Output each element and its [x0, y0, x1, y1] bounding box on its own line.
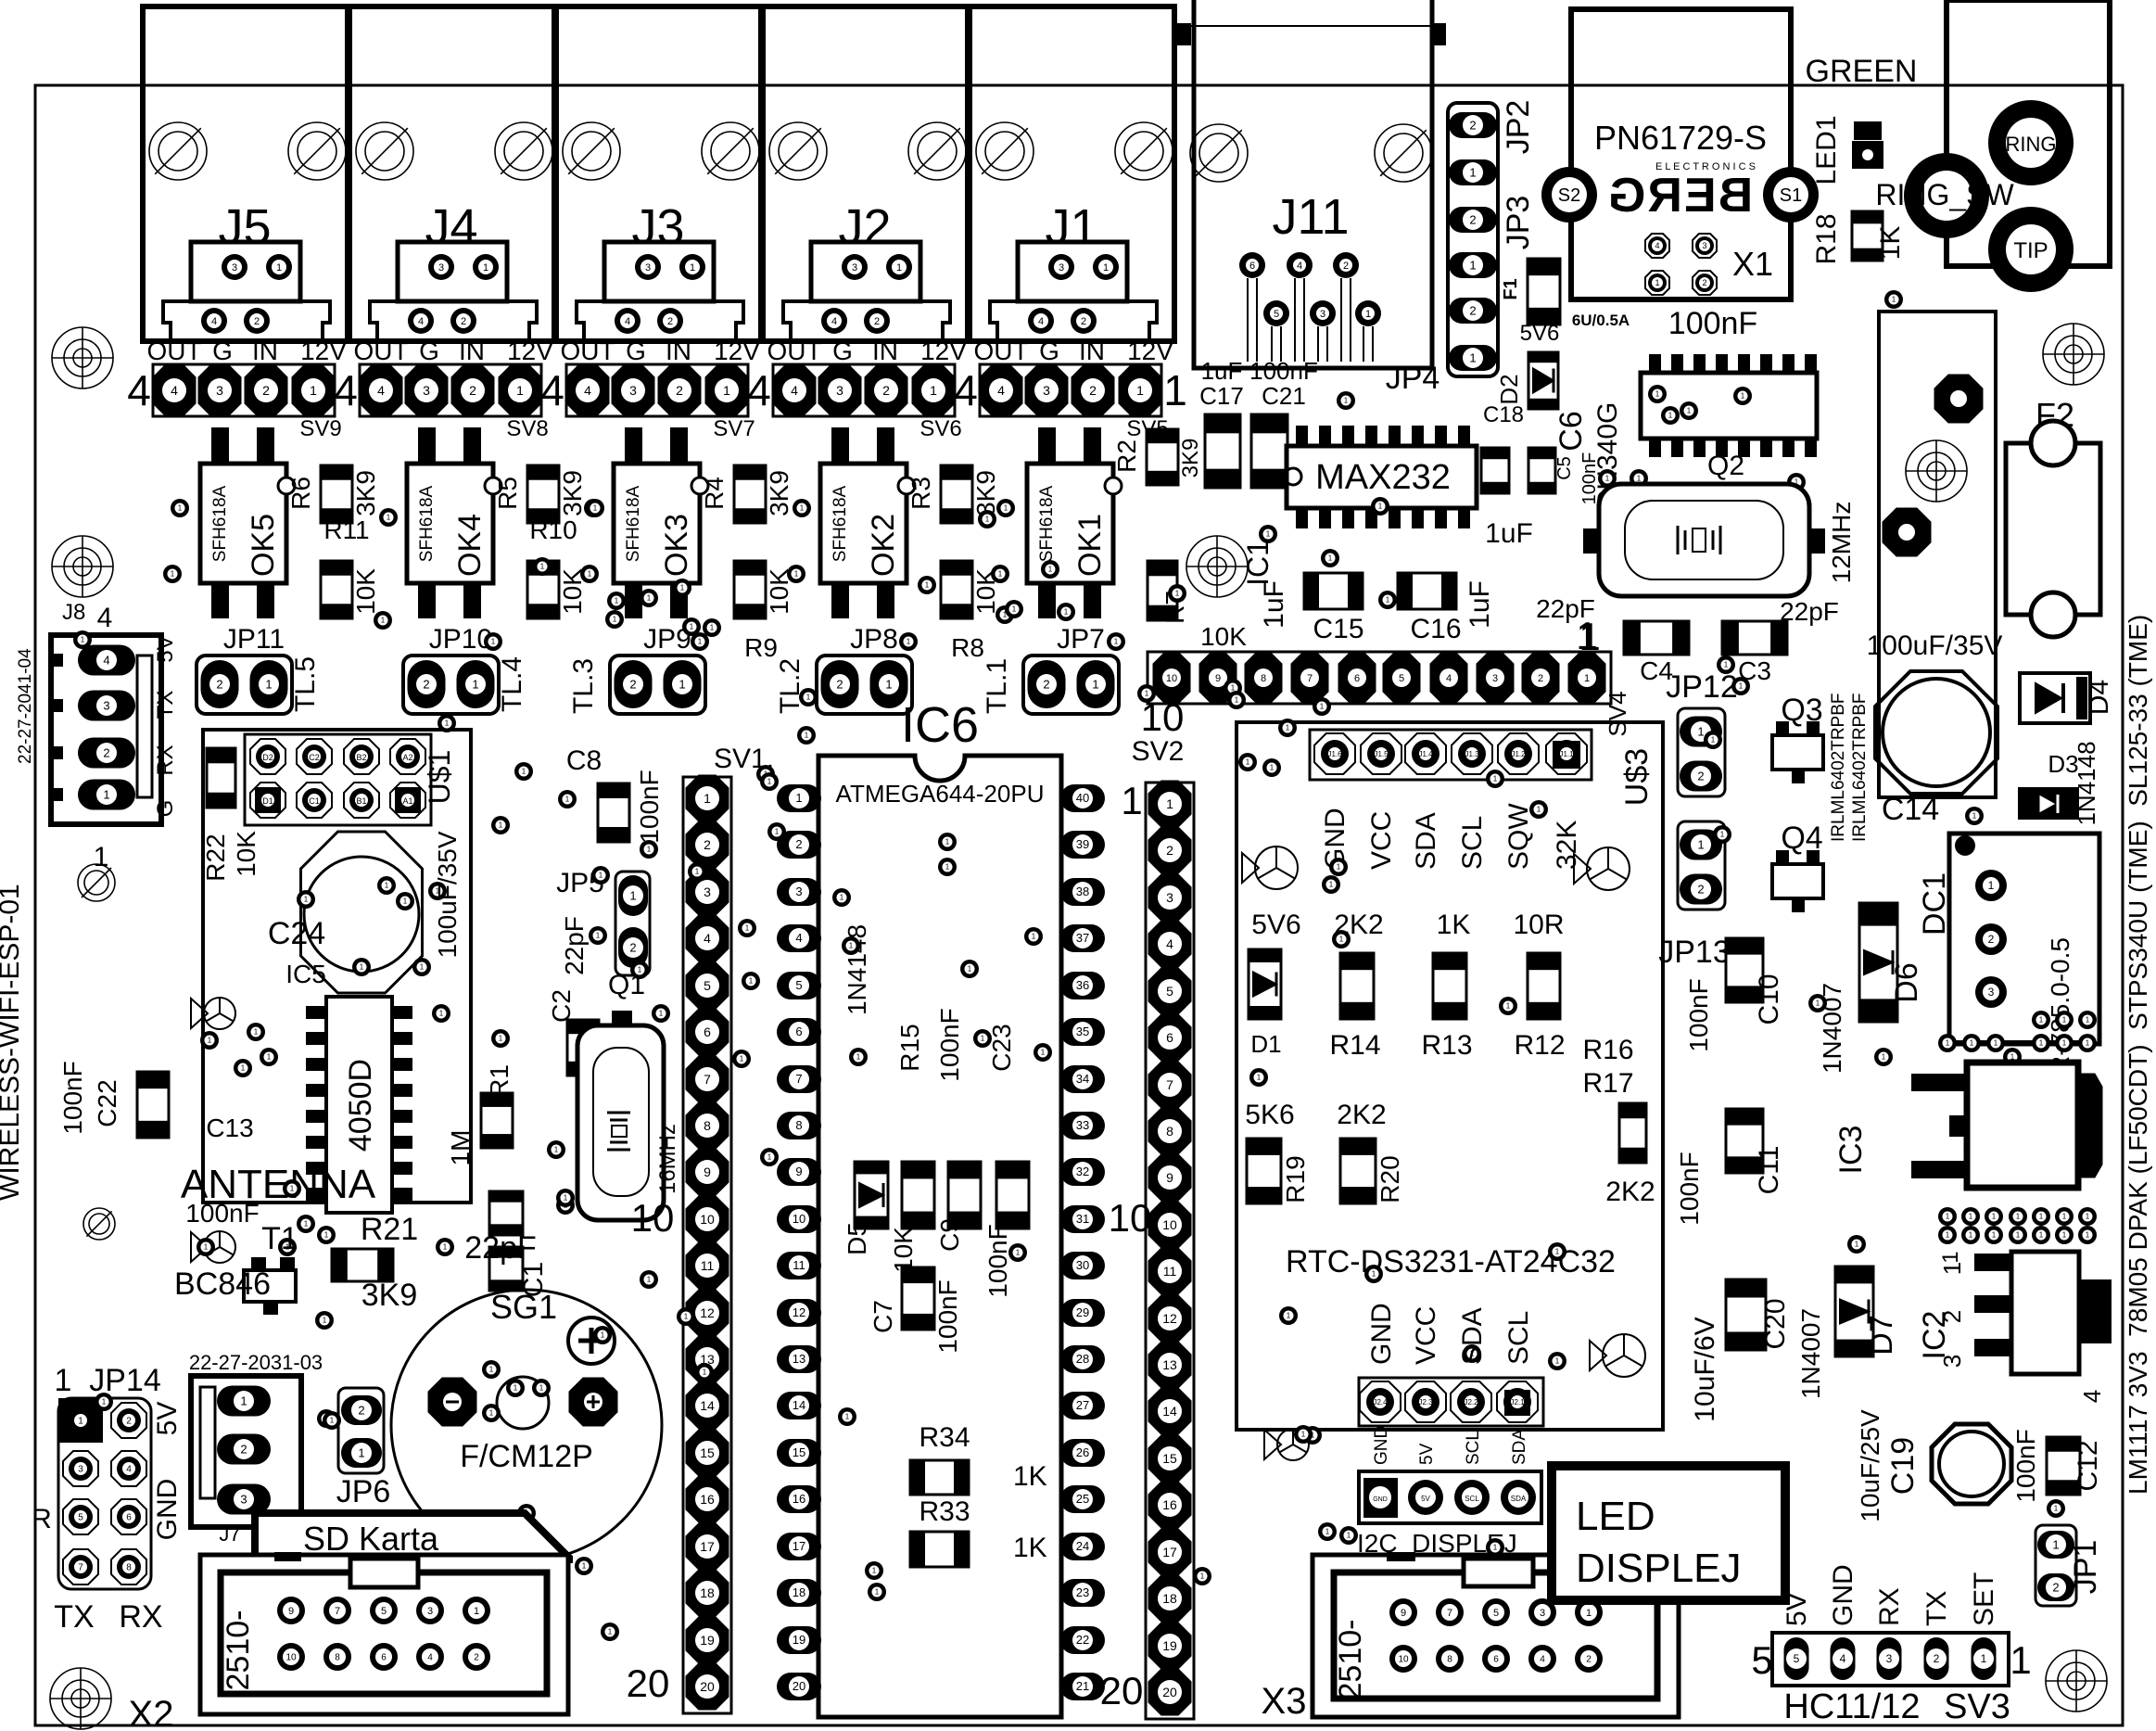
svg-text:1: 1: [680, 584, 685, 592]
svg-text:3: 3: [1540, 1608, 1545, 1619]
svg-text:2K2: 2K2: [1337, 1100, 1386, 1130]
svg-text:R17: R17: [1582, 1068, 1633, 1099]
svg-text:R11: R11: [323, 515, 369, 544]
svg-text:1: 1: [1992, 1231, 1997, 1240]
svg-text:1: 1: [103, 788, 109, 802]
svg-text:2: 2: [1043, 678, 1049, 692]
svg-text:12: 12: [1162, 1311, 1177, 1326]
svg-text:1: 1: [679, 678, 685, 692]
svg-text:20: 20: [700, 1679, 715, 1694]
svg-text:1: 1: [472, 678, 478, 692]
svg-text:2510-: 2510-: [221, 1610, 256, 1691]
svg-text:1: 1: [1064, 608, 1069, 617]
svg-text:OUT: OUT: [560, 337, 615, 365]
svg-text:GND: GND: [1372, 1426, 1391, 1465]
svg-text:1: 1: [1469, 166, 1476, 180]
svg-text:3: 3: [240, 1493, 247, 1507]
svg-text:4: 4: [954, 366, 978, 414]
svg-text:7: 7: [1307, 673, 1313, 684]
svg-text:4: 4: [2078, 1390, 2106, 1403]
svg-text:4: 4: [704, 931, 711, 946]
svg-text:1: 1: [2062, 1213, 2067, 1221]
svg-text:30: 30: [1076, 1258, 1089, 1272]
svg-text:17: 17: [700, 1539, 715, 1554]
svg-text:3: 3: [103, 699, 109, 713]
svg-text:SFH618A: SFH618A: [1037, 485, 1057, 562]
svg-text:1: 1: [2052, 1538, 2059, 1552]
svg-text:J2.4: J2.4: [1373, 1398, 1388, 1406]
svg-text:1: 1: [749, 977, 754, 986]
svg-text:IN: IN: [872, 337, 898, 365]
svg-text:1: 1: [690, 262, 695, 274]
svg-text:1: 1: [1266, 530, 1271, 539]
svg-text:22: 22: [1076, 1633, 1089, 1647]
svg-text:SFH618A: SFH618A: [417, 485, 437, 562]
svg-text:U$3: U$3: [1619, 748, 1655, 806]
svg-text:100nF: 100nF: [58, 1061, 87, 1134]
svg-text:C16: C16: [1410, 614, 1461, 644]
svg-text:1: 1: [2062, 1039, 2067, 1048]
svg-text:C7: C7: [869, 1300, 897, 1333]
svg-text:C14: C14: [1882, 792, 1939, 827]
svg-text:1: 1: [1992, 1213, 1997, 1221]
svg-text:2: 2: [874, 316, 880, 327]
svg-text:1: 1: [1145, 690, 1149, 698]
svg-text:1: 1: [615, 597, 619, 605]
svg-text:MAX232: MAX232: [1315, 458, 1451, 497]
svg-text:20: 20: [1162, 1685, 1177, 1699]
svg-text:SFH618A: SFH618A: [831, 485, 850, 562]
svg-text:100nF: 100nF: [1249, 357, 1318, 385]
svg-text:RX: RX: [119, 1599, 162, 1635]
svg-text:2: 2: [1343, 261, 1349, 272]
svg-text:1: 1: [304, 1220, 309, 1228]
svg-text:1: 1: [981, 1035, 985, 1043]
svg-text:5: 5: [795, 978, 802, 992]
svg-text:1uF: 1uF: [1201, 357, 1243, 385]
svg-text:100nF: 100nF: [1668, 306, 1757, 341]
svg-text:C8: C8: [566, 745, 602, 776]
svg-text:4: 4: [171, 383, 178, 398]
svg-text:40: 40: [1076, 791, 1089, 805]
svg-text:1: 1: [1469, 351, 1476, 365]
svg-text:R18: R18: [1811, 213, 1842, 264]
svg-text:SV3: SV3: [1944, 1687, 2010, 1726]
svg-text:1: 1: [775, 828, 780, 836]
svg-text:1: 1: [1576, 614, 1597, 657]
svg-text:R1: R1: [485, 1064, 514, 1098]
svg-text:R22: R22: [201, 834, 230, 881]
svg-text:GND: GND: [1366, 1303, 1397, 1365]
svg-text:1: 1: [945, 863, 950, 872]
svg-text:4: 4: [1446, 673, 1452, 684]
svg-text:R-785.0-0.5: R-785.0-0.5: [2046, 937, 2074, 1075]
svg-text:1: 1: [710, 624, 715, 632]
svg-text:12: 12: [700, 1305, 715, 1320]
svg-text:OUT: OUT: [353, 337, 408, 365]
svg-text:2: 2: [469, 383, 476, 398]
svg-text:OUT: OUT: [767, 337, 821, 365]
svg-text:OUT: OUT: [146, 337, 201, 365]
svg-text:1: 1: [930, 383, 937, 398]
svg-text:3: 3: [438, 262, 444, 274]
svg-text:8: 8: [1261, 673, 1266, 684]
svg-text:26: 26: [1076, 1445, 1089, 1459]
svg-text:R9: R9: [744, 633, 778, 662]
svg-text:4: 4: [625, 316, 630, 327]
svg-text:1: 1: [2086, 1039, 2090, 1048]
svg-text:U$1: U$1: [423, 750, 456, 805]
svg-text:16MHz: 16MHz: [655, 1124, 680, 1194]
svg-text:1: 1: [1246, 758, 1250, 767]
svg-text:SFH618A: SFH618A: [624, 485, 643, 562]
svg-text:OK4: OK4: [452, 514, 488, 577]
svg-text:JP11: JP11: [223, 624, 285, 655]
svg-text:1: 1: [489, 1409, 494, 1418]
svg-text:JP10: JP10: [429, 624, 492, 655]
svg-text:4: 4: [747, 366, 771, 414]
svg-text:10K: 10K: [232, 831, 260, 877]
svg-text:1: 1: [1637, 475, 1642, 483]
svg-text:19: 19: [700, 1633, 715, 1648]
svg-text:100uF/35V: 100uF/35V: [433, 831, 462, 958]
svg-text:9: 9: [1215, 673, 1221, 684]
svg-text:J2.2: J2.2: [1464, 1398, 1478, 1406]
svg-text:1: 1: [1114, 638, 1119, 646]
svg-text:1: 1: [638, 966, 642, 974]
svg-text:10K: 10K: [889, 1227, 918, 1273]
svg-text:SDA: SDA: [1510, 1429, 1529, 1465]
svg-text:1: 1: [304, 896, 309, 904]
svg-text:35: 35: [1076, 1025, 1089, 1038]
svg-text:1: 1: [2039, 1231, 2044, 1240]
svg-text:1: 1: [1816, 999, 1820, 1008]
svg-text:J7: J7: [219, 1522, 240, 1546]
svg-text:5: 5: [1794, 1652, 1800, 1665]
svg-text:1: 1: [1892, 296, 1896, 304]
svg-text:5: 5: [704, 978, 711, 993]
svg-text:3: 3: [1886, 1652, 1893, 1665]
svg-text:18: 18: [793, 1585, 805, 1599]
svg-text:1: 1: [1032, 933, 1036, 941]
svg-text:VCC: VCC: [1366, 811, 1397, 870]
svg-text:1: 1: [1016, 1249, 1021, 1257]
svg-text:C17: C17: [1199, 382, 1244, 410]
svg-text:1: 1: [499, 821, 503, 830]
svg-text:1N4007: 1N4007: [1796, 1308, 1825, 1399]
svg-text:16: 16: [793, 1492, 805, 1506]
svg-text:9: 9: [1166, 1170, 1173, 1185]
svg-text:1: 1: [2062, 1016, 2067, 1025]
svg-text:1: 1: [240, 1394, 247, 1408]
svg-text:1: 1: [845, 1413, 850, 1421]
svg-text:Q4: Q4: [1781, 821, 1822, 856]
svg-text:D4: D4: [2084, 680, 2114, 715]
svg-text:C10: C10: [1754, 974, 1784, 1025]
svg-text:4: 4: [795, 931, 802, 945]
svg-text:1: 1: [1739, 682, 1744, 691]
svg-text:G: G: [1039, 337, 1059, 365]
svg-text:C24: C24: [268, 916, 325, 951]
svg-text:R: R: [32, 1504, 52, 1534]
svg-text:1K: 1K: [1013, 1461, 1047, 1492]
svg-text:3: 3: [427, 1606, 433, 1617]
svg-text:1: 1: [2039, 1213, 2044, 1221]
svg-text:10K: 10K: [351, 568, 380, 615]
svg-text:BERG: BERG: [1606, 169, 1753, 223]
svg-text:6: 6: [1166, 1030, 1173, 1045]
svg-text:B1: B1: [356, 796, 366, 806]
svg-text:1: 1: [381, 617, 386, 625]
svg-text:1: 1: [1339, 936, 1344, 944]
svg-text:2K2: 2K2: [1605, 1177, 1655, 1207]
svg-text:C18: C18: [1483, 402, 1524, 427]
svg-text:15: 15: [700, 1445, 715, 1460]
svg-text:33: 33: [1076, 1118, 1089, 1132]
svg-text:25: 25: [1076, 1492, 1089, 1506]
svg-text:10: 10: [700, 1212, 715, 1227]
svg-text:1: 1: [474, 1606, 479, 1617]
svg-text:100nF: 100nF: [185, 1199, 259, 1228]
svg-text:IRLML6402TRPBF: IRLML6402TRPBF: [1850, 693, 1870, 842]
svg-text:5: 5: [1166, 984, 1173, 999]
svg-text:1: 1: [945, 838, 950, 846]
svg-text:1: 1: [1004, 504, 1008, 513]
svg-text:RX: RX: [1874, 1587, 1905, 1626]
svg-text:1: 1: [323, 1317, 327, 1325]
svg-text:SDA: SDA: [1411, 812, 1441, 870]
svg-text:D1: D1: [262, 796, 273, 806]
svg-text:3K9: 3K9: [351, 470, 380, 516]
svg-text:1: 1: [1946, 1039, 1950, 1048]
svg-text:8: 8: [1447, 1655, 1452, 1665]
svg-text:R4: R4: [700, 477, 729, 510]
svg-text:1: 1: [1166, 796, 1173, 811]
svg-text:1: 1: [1981, 1652, 1987, 1665]
svg-text:1: 1: [439, 1010, 444, 1018]
svg-text:7: 7: [335, 1606, 340, 1617]
svg-text:3: 3: [78, 1465, 83, 1475]
svg-text:2: 2: [126, 1417, 132, 1427]
svg-text:J2.3: J2.3: [1418, 1398, 1433, 1406]
svg-text:1: 1: [102, 1398, 107, 1406]
svg-text:2: 2: [358, 1404, 364, 1418]
svg-text:JP1: JP1: [2068, 1540, 2103, 1595]
svg-text:1: 1: [1493, 1544, 1498, 1552]
svg-text:C12: C12: [2073, 1440, 2103, 1491]
svg-text:1: 1: [885, 678, 892, 692]
svg-text:1: 1: [1584, 673, 1590, 684]
svg-text:D2: D2: [262, 753, 273, 762]
svg-text:1: 1: [1270, 764, 1275, 772]
svg-text:12V: 12V: [920, 337, 967, 365]
svg-text:IC5: IC5: [285, 960, 326, 988]
svg-text:1uF: 1uF: [1465, 580, 1495, 629]
svg-text:1: 1: [491, 638, 496, 646]
svg-text:5V: 5V: [1417, 1443, 1437, 1465]
svg-text:10: 10: [1166, 673, 1177, 684]
svg-text:C19: C19: [1885, 1437, 1921, 1495]
svg-text:1: 1: [767, 778, 772, 786]
svg-text:3: 3: [1059, 262, 1064, 274]
svg-text:1: 1: [1969, 1213, 1973, 1221]
svg-text:1: 1: [1605, 475, 1610, 483]
svg-text:1: 1: [1970, 1039, 1974, 1048]
svg-text:1: 1: [695, 868, 700, 876]
svg-text:C22: C22: [93, 1079, 121, 1126]
svg-text:2: 2: [1081, 316, 1086, 327]
svg-text:12V: 12V: [714, 337, 760, 365]
svg-text:16: 16: [1162, 1497, 1177, 1512]
svg-text:RING: RING: [2006, 133, 2057, 156]
svg-text:1uF: 1uF: [1485, 518, 1533, 549]
svg-text:IRLML6402TRPBF: IRLML6402TRPBF: [1829, 693, 1848, 842]
svg-text:3: 3: [423, 383, 430, 398]
svg-text:3: 3: [1320, 309, 1325, 320]
svg-text:14: 14: [1162, 1404, 1177, 1419]
svg-text:2: 2: [240, 1443, 247, 1457]
svg-text:1: 1: [800, 504, 805, 513]
svg-text:6: 6: [381, 1653, 387, 1663]
svg-text:1: 1: [849, 942, 854, 950]
svg-text:1: 1: [601, 1331, 605, 1340]
svg-text:34: 34: [1076, 1072, 1089, 1086]
svg-text:R8: R8: [951, 633, 984, 662]
svg-text:R20: R20: [1376, 1155, 1404, 1203]
svg-text:X3: X3: [1262, 1681, 1307, 1722]
svg-text:1: 1: [1163, 366, 1187, 414]
svg-text:3: 3: [629, 383, 637, 398]
svg-text:F1: F1: [1501, 278, 1521, 299]
svg-text:5: 5: [1274, 309, 1279, 320]
svg-text:10K: 10K: [1200, 622, 1247, 651]
svg-text:C20: C20: [1760, 1298, 1791, 1349]
svg-text:1: 1: [690, 623, 694, 631]
svg-text:C5: C5: [1554, 456, 1575, 480]
svg-text:D2: D2: [1495, 374, 1523, 404]
svg-text:JP13: JP13: [1658, 935, 1731, 970]
svg-text:5: 5: [1751, 1638, 1772, 1682]
svg-text:3: 3: [1702, 241, 1706, 250]
svg-text:1: 1: [629, 889, 636, 903]
svg-text:1: 1: [840, 894, 844, 902]
svg-text:1: 1: [703, 1368, 707, 1377]
svg-text:6: 6: [795, 1025, 802, 1038]
svg-text:LM1117 3V3 78M05 DPAK (LF50CD: LM1117 3V3 78M05 DPAK (LF50CDT) STPS340U…: [2124, 615, 2152, 1495]
svg-text:29: 29: [1076, 1305, 1089, 1319]
svg-text:12: 12: [793, 1305, 805, 1319]
svg-text:21: 21: [1076, 1679, 1089, 1693]
svg-text:3: 3: [1043, 383, 1050, 398]
svg-text:1: 1: [565, 795, 570, 804]
svg-text:36: 36: [1076, 978, 1089, 992]
svg-text:1K: 1K: [1875, 226, 1906, 261]
svg-text:4: 4: [1297, 261, 1302, 272]
svg-text:1: 1: [2016, 1231, 2021, 1240]
svg-text:6: 6: [1354, 673, 1360, 684]
svg-text:1: 1: [554, 1146, 559, 1154]
svg-text:4: 4: [1840, 1652, 1846, 1665]
svg-text:TL.4: TL.4: [497, 656, 527, 712]
svg-text:1: 1: [1235, 696, 1239, 705]
svg-text:C23: C23: [987, 1024, 1016, 1071]
svg-text:1: 1: [78, 1417, 83, 1427]
svg-text:22-27-2031-03: 22-27-2031-03: [189, 1351, 323, 1374]
svg-text:JP4: JP4: [1386, 361, 1440, 396]
svg-text:4: 4: [1655, 241, 1659, 250]
svg-text:5V6: 5V6: [1251, 910, 1300, 940]
svg-text:5V: 5V: [1782, 1592, 1812, 1626]
svg-text:1: 1: [1365, 309, 1371, 320]
svg-text:1: 1: [387, 514, 391, 522]
svg-text:1: 1: [1855, 1241, 1859, 1249]
svg-text:1: 1: [2086, 1016, 2090, 1025]
svg-text:1: 1: [55, 1363, 72, 1398]
svg-text:10: 10: [793, 1212, 805, 1226]
svg-text:TX: TX: [54, 1599, 94, 1635]
svg-text:1: 1: [1697, 725, 1704, 739]
svg-text:1: 1: [745, 924, 750, 933]
svg-text:22-27-2041-04: 22-27-2041-04: [16, 648, 35, 764]
svg-text:1: 1: [2086, 1213, 2090, 1221]
svg-text:SV9: SV9: [299, 416, 341, 441]
svg-text:1: 1: [1136, 383, 1144, 398]
svg-text:1: 1: [613, 616, 617, 624]
svg-text:8: 8: [126, 1563, 132, 1573]
svg-text:R15: R15: [895, 1024, 924, 1071]
svg-text:TL.5: TL.5: [290, 656, 321, 712]
svg-text:16: 16: [700, 1492, 715, 1507]
svg-text:4: 4: [103, 654, 109, 668]
svg-text:IN: IN: [666, 337, 691, 365]
svg-text:IC6: IC6: [901, 697, 979, 753]
svg-text:1: 1: [1655, 390, 1660, 399]
svg-text:GND: GND: [1373, 1496, 1388, 1503]
svg-text:RING_SW: RING_SW: [1875, 178, 2014, 211]
svg-text:1: 1: [178, 504, 183, 513]
svg-text:1: 1: [875, 1588, 880, 1597]
svg-text:5V: 5V: [153, 635, 178, 662]
svg-text:SD Karta: SD Karta: [303, 1520, 439, 1558]
svg-text:1: 1: [896, 262, 902, 274]
svg-text:GND: GND: [152, 1479, 183, 1541]
svg-text:2: 2: [629, 941, 636, 955]
svg-text:SDA: SDA: [1511, 1495, 1527, 1503]
svg-text:1: 1: [540, 563, 545, 571]
svg-text:1: 1: [2062, 1231, 2067, 1240]
svg-text:1: 1: [599, 872, 603, 880]
svg-text:1: 1: [596, 932, 601, 940]
svg-text:2: 2: [254, 316, 260, 327]
svg-text:1: 1: [2086, 1231, 2090, 1240]
svg-text:3: 3: [795, 885, 802, 898]
svg-text:1: 1: [1994, 1039, 1998, 1048]
svg-text:1: 1: [907, 638, 911, 646]
svg-text:GND: GND: [1828, 1564, 1858, 1626]
svg-text:4: 4: [584, 383, 591, 398]
svg-text:JP7: JP7: [1057, 624, 1105, 655]
svg-text:14: 14: [700, 1398, 715, 1413]
svg-text:31: 31: [1076, 1212, 1089, 1226]
svg-text:1: 1: [740, 1055, 744, 1063]
svg-text:100nF: 100nF: [635, 770, 664, 843]
svg-text:1: 1: [360, 963, 364, 972]
svg-text:1: 1: [1257, 1074, 1262, 1082]
svg-text:1M: 1M: [446, 1130, 475, 1166]
svg-text:2: 2: [1702, 278, 1706, 287]
svg-text:SDA: SDA: [1457, 1307, 1488, 1365]
svg-text:1: 1: [241, 1064, 246, 1073]
